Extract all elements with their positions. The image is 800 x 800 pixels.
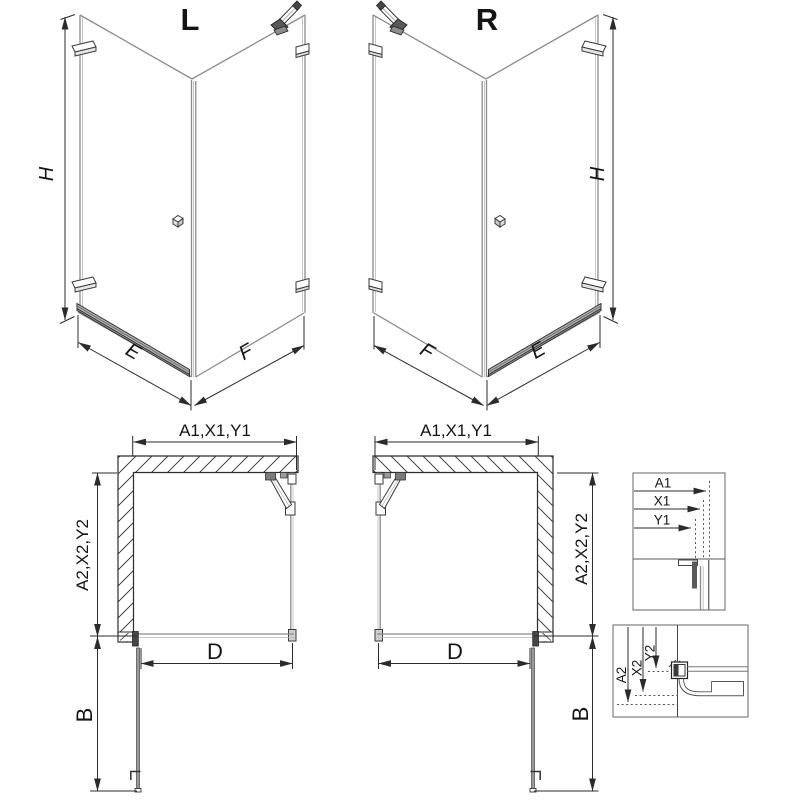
- technical-drawing-page: L H E F R H F E A1,X1,Y1 A2,X2,Y2 D B: [0, 0, 800, 800]
- r-view-geometry: [369, 1, 618, 411]
- r-plan-top-dim-label: A1,X1,Y1: [420, 421, 492, 440]
- l-plan-opening-dim-label: D: [207, 639, 223, 664]
- l-plan-door-dim-label: B: [72, 708, 97, 723]
- l-plan-view: A1,X1,Y1 A2,X2,Y2 D B: [72, 421, 298, 792]
- height-dim-label-left: H: [36, 166, 58, 181]
- detail-bottom-y2-label: Y2: [643, 645, 658, 662]
- r-plan-dimensions: [375, 436, 599, 791]
- r-plan-side-dim-label: A2,X2,Y2: [572, 513, 591, 585]
- detail-box-bottom: A2 X2 Y2: [613, 625, 748, 717]
- variant-label-right: R: [476, 2, 498, 37]
- r-plan-opening-dim-label: D: [447, 639, 463, 664]
- l-plan-geometry: [118, 456, 298, 792]
- detail-top-x1-label: X1: [654, 494, 671, 509]
- height-dim-label-right: H: [587, 166, 609, 181]
- detail-top-y1-label: Y1: [654, 513, 671, 528]
- l-plan-side-dim-label: A2,X2,Y2: [73, 519, 92, 591]
- detail-bottom-a2-label: A2: [614, 667, 629, 684]
- r-plan-view: A1,X1,Y1 A2,X2,Y2 D B: [373, 421, 599, 792]
- detail-box-top: A1 X1 Y1: [633, 473, 725, 610]
- r-plan-door-dim-label: B: [568, 707, 593, 722]
- detail-top-a1-label: A1: [655, 476, 672, 491]
- door-width-label-left: E: [122, 339, 145, 365]
- panel-width-label-right: F: [416, 339, 439, 365]
- r-view-3d: R H F E: [369, 1, 618, 411]
- variant-label-left: L: [181, 2, 200, 37]
- l-view-3d: L H E F: [36, 1, 309, 411]
- l-view-geometry: [60, 1, 309, 411]
- r-plan-geometry: [373, 456, 553, 792]
- l-plan-top-dim-label: A1,X1,Y1: [179, 421, 251, 440]
- shower-enclosure-technical-drawing: L H E F R H F E A1,X1,Y1 A2,X2,Y2 D B: [0, 0, 800, 800]
